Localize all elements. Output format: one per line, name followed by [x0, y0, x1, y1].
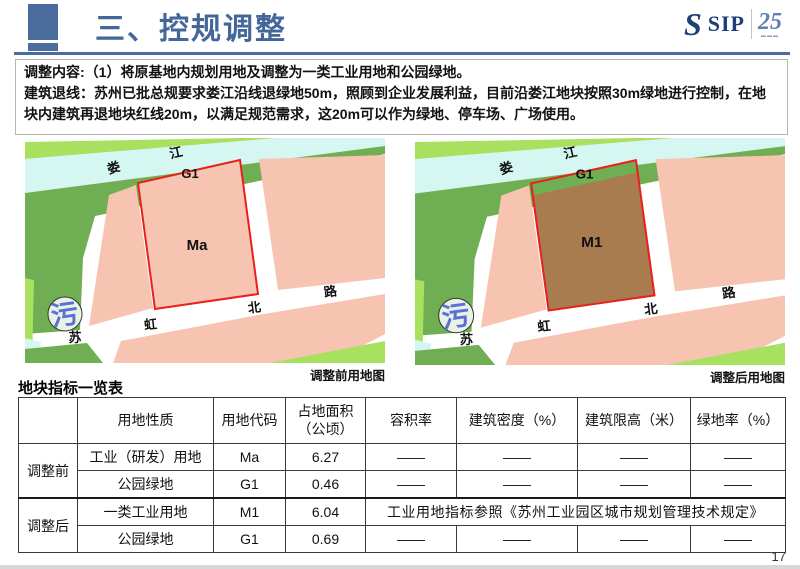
cell-far: —— [366, 444, 457, 471]
road-label-su: 苏 [460, 331, 473, 347]
cell-area: 6.27 [286, 444, 366, 471]
cell-industrial-note: 工业用地指标参照《苏州工业园区城市规划管理技术规定》 [366, 498, 786, 526]
cell-height: —— [578, 526, 691, 553]
green-code-label: G1 [181, 166, 198, 181]
group-label-after: 调整后 [19, 498, 78, 553]
header-land-nature: 用地性质 [78, 398, 214, 444]
road-label-bei: 北 [643, 301, 659, 317]
cell-area: 6.04 [286, 498, 366, 526]
map-after-caption: 调整后用地图 [415, 367, 785, 386]
east-parcel [259, 155, 385, 290]
table-header-row: 用地性质 用地代码 占地面积（公顷） 容积率 建筑密度（%） 建筑限高（米） 绿… [19, 398, 786, 444]
cell-density: —— [457, 444, 578, 471]
table-row: 公园绿地 G1 0.46 —— —— —— —— [19, 471, 786, 499]
cell-green: —— [691, 471, 786, 499]
cell-area: 0.46 [286, 471, 366, 499]
map-before-adjustment: 娄 江 G1 Ma 苏 虹 北 路 污 调整前用地图 [25, 138, 385, 384]
header-underline [14, 52, 790, 55]
cell-nature: 公园绿地 [78, 471, 214, 499]
adjustment-description: 调整内容:（1）将原基地内规划用地及调整为一类工业用地和公园绿地。 建筑退线：苏… [15, 59, 788, 135]
cell-nature: 工业（研发）用地 [78, 444, 214, 471]
adjustment-content-line: 调整内容:（1）将原基地内规划用地及调整为一类工业用地和公园绿地。 [24, 62, 779, 83]
cell-height: —— [578, 471, 691, 499]
header-far: 容积率 [366, 398, 457, 444]
table-title: 地块指标一览表 [18, 377, 123, 398]
setback-line: 建筑退线：苏州已批总规要求娄江沿线退绿地50m，照顾到企业发展利益，目前沿娄江地… [24, 83, 779, 125]
cell-area: 0.69 [286, 526, 366, 553]
header-area-line2: （公顷） [298, 421, 354, 437]
cell-code: Ma [214, 444, 286, 471]
parcel-code-label: Ma [187, 237, 208, 254]
table-row: 调整前 工业（研发）用地 Ma 6.27 —— —— —— —— [19, 444, 786, 471]
cell-height: —— [578, 444, 691, 471]
parcel-indicator-table: 用地性质 用地代码 占地面积（公顷） 容积率 建筑密度（%） 建筑限高（米） 绿… [18, 397, 786, 553]
logo-divider [751, 9, 752, 39]
header-density: 建筑密度（%） [457, 398, 578, 444]
map-after-adjustment: 娄 江 G1 M1 苏 虹 北 路 污 调整后用地图 [415, 138, 785, 386]
page-number: 17 [772, 549, 786, 564]
cell-far: —— [366, 471, 457, 499]
header-area-line1: 占地面积 [298, 403, 354, 419]
group-label-before: 调整前 [19, 444, 78, 499]
cell-far: —— [366, 526, 457, 553]
cell-density: —— [457, 526, 578, 553]
cell-nature: 一类工业用地 [78, 498, 214, 526]
cell-green: —— [691, 444, 786, 471]
road-label-hong: 虹 [537, 318, 552, 334]
page-title: 三、控规调整 [95, 4, 287, 48]
cell-code: G1 [214, 471, 286, 499]
header-decor-bar [28, 43, 58, 51]
header-land-code: 用地代码 [214, 398, 286, 444]
logo-subtext-bar: ▬▬▬ [758, 34, 782, 39]
sip-logo: S SIP 25▬▬▬ [684, 8, 782, 40]
cell-code: M1 [214, 498, 286, 526]
header-height-limit: 建筑限高（米） [578, 398, 691, 444]
table-row: 调整后 一类工业用地 M1 6.04 工业用地指标参照《苏州工业园区城市规划管理… [19, 498, 786, 526]
green-code-label: G1 [576, 166, 594, 181]
road-label-hong: 虹 [143, 316, 158, 332]
sip-logo-text: SIP [708, 11, 745, 37]
sewage-plant-icon: 污 [440, 299, 472, 333]
east-parcel [656, 155, 786, 291]
anniversary-number: 25 [758, 9, 782, 35]
cell-density: —— [457, 471, 578, 499]
road-label-bei: 北 [247, 299, 262, 315]
sip-25-anniversary-logo: 25▬▬▬ [758, 10, 782, 39]
cell-nature: 公园绿地 [78, 526, 214, 553]
slide: 三、控规调整 S SIP 25▬▬▬ 调整内容:（1）将原基地内规划用地及调整为… [0, 0, 800, 569]
header-empty [19, 398, 78, 444]
road-label-su: 苏 [68, 330, 81, 345]
header-green-ratio: 绿地率（%） [691, 398, 786, 444]
subject-parcel-fill [138, 160, 258, 309]
parcel-code-label: M1 [581, 234, 603, 251]
sewage-plant-icon: 污 [49, 298, 80, 331]
header-decor-square [28, 4, 58, 40]
table-row: 公园绿地 G1 0.69 —— —— —— —— [19, 526, 786, 553]
land-use-map-before: 娄 江 G1 Ma 苏 虹 北 路 污 [25, 138, 385, 363]
header-area: 占地面积（公顷） [286, 398, 366, 444]
cell-code: G1 [214, 526, 286, 553]
sip-s-icon: S [684, 8, 702, 40]
land-use-map-after: 娄 江 G1 M1 苏 虹 北 路 污 [415, 138, 785, 365]
